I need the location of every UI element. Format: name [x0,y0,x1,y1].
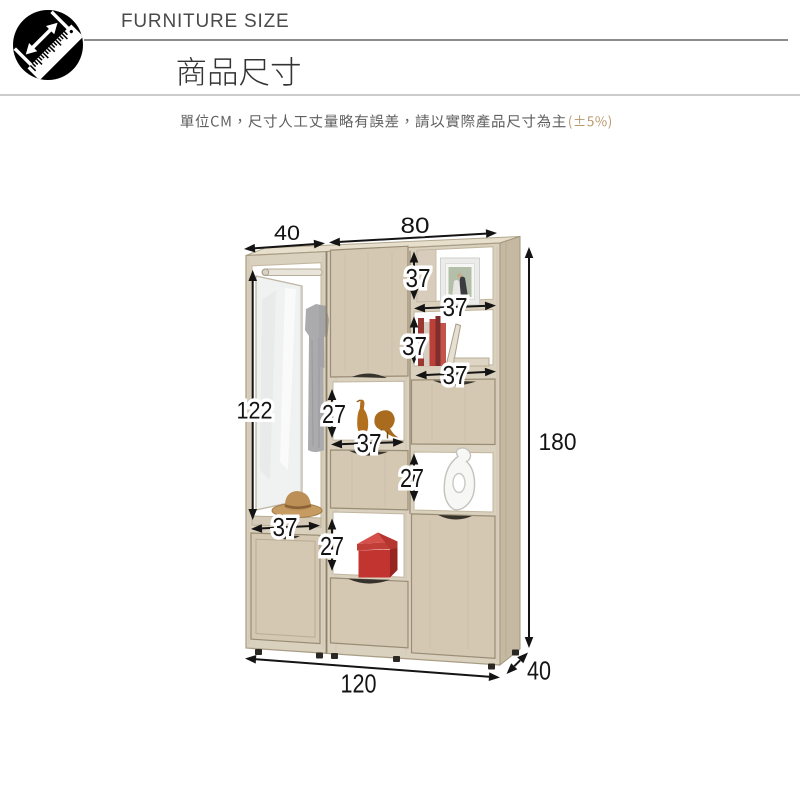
svg-text:122: 122 [237,398,273,425]
svg-text:27: 27 [322,399,346,429]
svg-text:37: 37 [443,360,468,390]
svg-text:37: 37 [357,428,382,458]
svg-text:40: 40 [527,656,551,686]
svg-text:120: 120 [341,671,377,699]
svg-text:40: 40 [274,221,300,245]
svg-text:180: 180 [539,429,577,456]
svg-text:80: 80 [401,213,430,238]
svg-text:37: 37 [406,263,431,293]
svg-text:27: 27 [400,463,424,493]
svg-text:37: 37 [443,292,468,322]
svg-text:37: 37 [402,331,427,361]
svg-text:27: 27 [320,531,344,561]
svg-text:37: 37 [273,512,298,542]
